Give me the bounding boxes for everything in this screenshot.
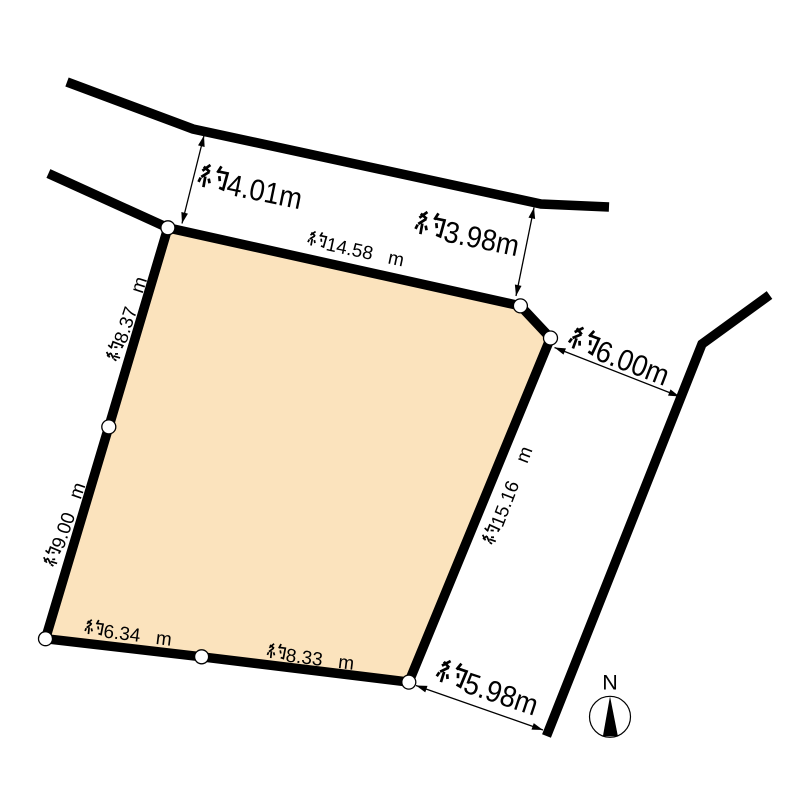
svg-text:N: N <box>602 671 618 695</box>
